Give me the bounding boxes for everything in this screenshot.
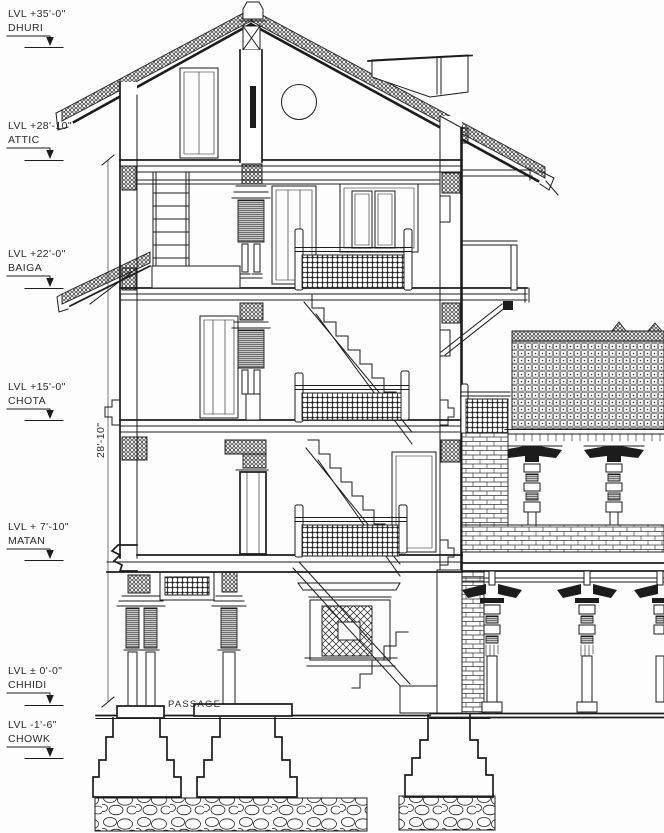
level-name: CHOTA (8, 395, 46, 407)
level-elevation: LVL +35'-0" (8, 8, 66, 20)
level-name: MATAN (8, 535, 45, 547)
section-drawing: PASSAGE (0, 0, 664, 833)
level-annotation-attic: LVL +28'-10" ATTIC (7, 120, 72, 161)
porch-columns (117, 596, 165, 718)
dimension-text: 28'-10" (95, 423, 107, 458)
foundations (93, 714, 664, 832)
level-elevation: LVL -1'-6" (8, 719, 57, 731)
stepped-footing-center (197, 718, 297, 797)
level-annotation-chowk: LVL -1'-6" CHOWK (7, 719, 63, 759)
level-annotation-matan: LVL + 7'-10" MATAN (7, 521, 69, 561)
level-arrow-icon (46, 278, 54, 287)
level-annotations: LVL +35'-0" DHURI LVL +28'-10" ATTIC LVL… (7, 8, 72, 759)
matan-balcony-railing (295, 505, 407, 557)
level-elevation: LVL ± 0'-0" (8, 665, 62, 677)
level-annotation-baiga: LVL +22'-0" BAIGA (7, 248, 66, 289)
ground-lattice-window (298, 583, 400, 666)
level-arrow-icon (46, 748, 54, 757)
stepped-footing-left (93, 718, 181, 797)
chota-balcony-railing (295, 371, 409, 422)
lower-veranda-columns (462, 571, 664, 712)
roof-tile-band-left (62, 9, 251, 121)
veranda-post (511, 245, 517, 290)
chota-interior (200, 294, 412, 444)
level-arrow-icon (46, 695, 54, 704)
courtyard-wing-roof (505, 322, 664, 441)
level-name: DHURI (8, 22, 43, 34)
level-name: BAIGA (8, 262, 42, 274)
upper-veranda-columns (502, 446, 644, 525)
level-elevation: LVL +15'-0" (8, 381, 66, 393)
chota-window (200, 316, 238, 418)
brick-parapet (462, 525, 664, 552)
brick-wall-upper (462, 433, 508, 525)
level-arrow-icon (46, 550, 54, 559)
baiga-balcony-railing (295, 229, 412, 290)
level-arrow-icon (46, 410, 54, 419)
level-annotation-dhuri: LVL +35'-0" DHURI (7, 8, 66, 48)
round-window (282, 85, 317, 120)
cornice-moulding-chota (105, 400, 120, 425)
attic-interior (152, 68, 317, 288)
level-annotation-chhidi: LVL ± 0'-0" CHHIDI (7, 665, 63, 706)
level-arrow-icon (46, 37, 54, 46)
level-name: CHOWK (8, 733, 50, 745)
level-arrow-icon (46, 150, 54, 159)
section-drawing-sheet: PASSAGE (0, 0, 664, 833)
ground-story: PASSAGE (117, 562, 437, 718)
passage-label: PASSAGE (168, 699, 221, 710)
left-wall (105, 82, 150, 593)
roof-tile-band-right (251, 9, 545, 178)
center-column (194, 26, 292, 716)
level-annotation-chota: LVL +15'-0" CHOTA (7, 381, 66, 421)
level-name: ATTIC (8, 134, 40, 146)
ridge-finial (243, 2, 263, 19)
level-elevation: LVL +22'-0" (8, 248, 66, 260)
level-elevation: LVL + 7'-10" (8, 521, 69, 533)
stepped-footing-right (405, 715, 493, 797)
level-name: CHHIDI (8, 679, 47, 691)
height-dimension: 28'-10" (95, 155, 114, 707)
baiga-interior (272, 184, 418, 290)
level-elevation: LVL +28'-10" (8, 120, 72, 132)
stair-flight-upper (300, 294, 412, 444)
